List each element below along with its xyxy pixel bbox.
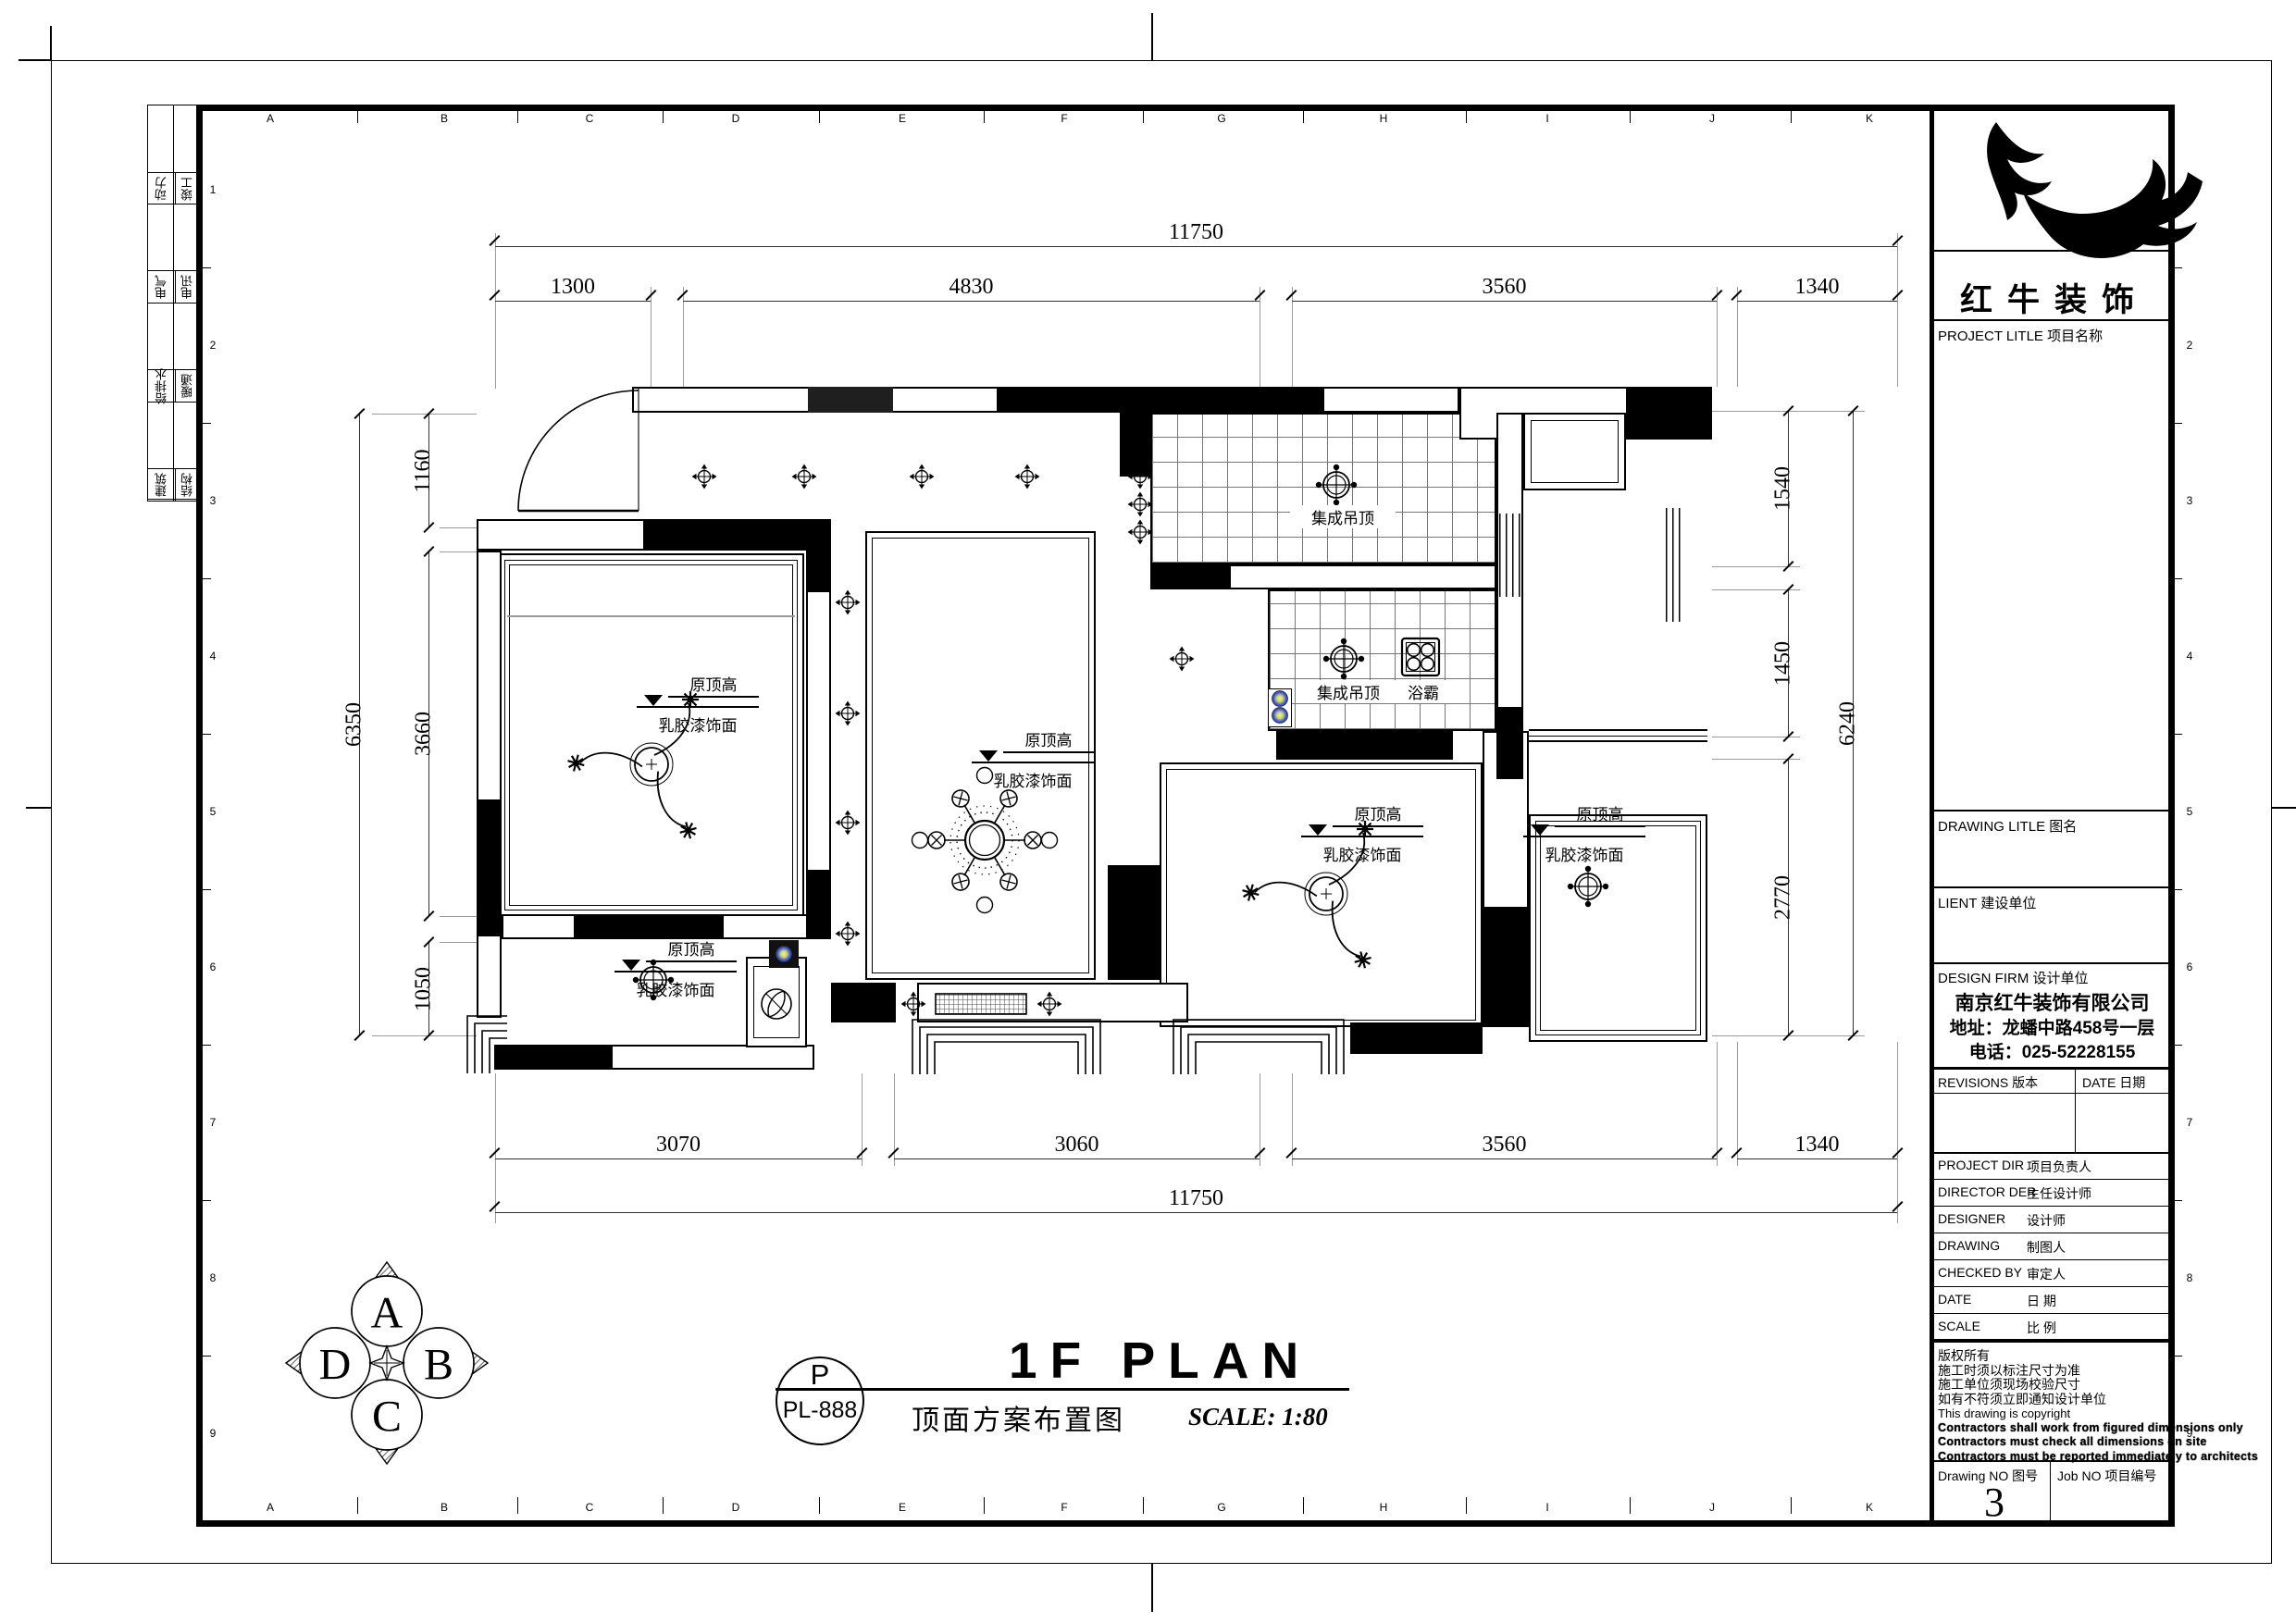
badge-number: PL-888 (776, 1397, 864, 1424)
sign-cell: 给排水 (147, 369, 176, 403)
grid-tick (2169, 1200, 2182, 1201)
grid-tick (198, 578, 211, 579)
grid-tick (198, 889, 211, 890)
row-label: 项目负责人 (2027, 1158, 2091, 1176)
scale-text: SCALE: 1:80 (1188, 1403, 1328, 1431)
badge-letter: P (776, 1358, 864, 1392)
sign-cell: 暖通 (173, 369, 201, 403)
copyright-line: Contractors must check all dimensions on… (1938, 1435, 2258, 1450)
grid-tick (2169, 889, 2182, 890)
bath-heater-label: 浴霸 (1384, 680, 1462, 703)
grid-reference-label: H (1374, 1501, 1393, 1514)
grid-reference-label: 4 (2180, 650, 2199, 663)
plan-subtitle: 顶面方案布置图 (912, 1397, 1125, 1438)
sign-label: 结构 (179, 473, 196, 497)
grid-reference-label: 9 (204, 1427, 222, 1440)
company-name: 南京红牛装饰有限公司 (1930, 988, 2175, 1016)
dimension: 1540 (1788, 411, 1789, 566)
copyright-block: 版权所有 施工时须以标注尺寸为准 施工单位须现场校验尺寸 如有不符须立即通知设计… (1938, 1349, 2258, 1464)
dimension: 3560 (1292, 1158, 1717, 1159)
dimension-right-overall: 6240 (1853, 411, 1854, 1035)
grid-tick (517, 106, 518, 123)
sign-label: 给排水 (153, 368, 170, 404)
grid-tick (1303, 106, 1304, 123)
grid-tick (198, 1045, 211, 1046)
grid-tick (517, 1497, 518, 1514)
titleblock-line (1930, 886, 2175, 888)
section-label: PROJECT LITLE 项目名称 (1938, 326, 2103, 345)
sign-cell: 电讯 (173, 270, 201, 304)
grid-tick (1791, 1497, 1792, 1514)
section-label: DRAWING LITLE 图名 (1938, 816, 2077, 836)
grid-reference-label: K (1860, 112, 1879, 125)
downlight-box (1268, 688, 1292, 727)
titleblock-line (2050, 1460, 2051, 1527)
grid-reference-label: 8 (204, 1271, 222, 1284)
section-label: REVISIONS 版本 (1938, 1073, 2038, 1092)
grid-reference-label: I (1538, 1501, 1557, 1514)
company-phone: 电话：025-52228155 (1930, 1038, 2175, 1063)
drawing-sheet: { "brand": {"name": "红牛装饰"}, "sign_strip… (0, 0, 2296, 1623)
titleblock-line (1930, 1313, 2175, 1314)
grid-reference-label: 3 (2180, 494, 2199, 507)
grid-tick (198, 267, 211, 268)
grid-reference-label: K (1860, 1501, 1879, 1514)
row-label: DIRECTOR DER (1938, 1184, 2036, 1199)
grid-tick (1791, 106, 1792, 123)
dimension: 3070 (495, 1158, 862, 1159)
grid-tick (1630, 1497, 1631, 1514)
sign-label: 电气 (153, 275, 170, 299)
sign-cell: 电气 (147, 270, 176, 304)
grid-reference-label: E (893, 1501, 912, 1514)
dimension-bottom-overall: 11750 (495, 1212, 1897, 1213)
brand-name: 红牛装饰 (1934, 274, 2175, 321)
grid-reference-label: 3 (204, 494, 222, 507)
copyright-line: 施工时须以标注尺寸为准 (1938, 1364, 2258, 1379)
drawing-no-value: 3 (1943, 1479, 2045, 1526)
titleblock-line (1930, 1259, 2175, 1260)
row-label: PROJECT DIR (1938, 1158, 2024, 1172)
grid-reference-label: J (1703, 1501, 1721, 1514)
grid-tick (357, 106, 358, 123)
grid-reference-label: G (1212, 112, 1231, 125)
grid-reference-label: 6 (204, 960, 222, 973)
grid-reference-label: B (435, 112, 453, 125)
grid-reference-label: J (1703, 112, 1721, 125)
dimension-top-overall: 11750 (495, 246, 1897, 247)
sign-cell: 建筑 (147, 468, 176, 502)
dimension: 1340 (1737, 1158, 1897, 1159)
titleblock-line (1930, 1206, 2175, 1207)
grid-tick (1466, 106, 1467, 123)
titleblock-line (1930, 1152, 2175, 1154)
row-label: CHECKED BY (1938, 1265, 2022, 1280)
titleblock-line (1930, 1067, 2175, 1070)
grid-reference-label: I (1538, 112, 1557, 125)
grid-reference-label: G (1212, 1501, 1231, 1514)
exhaust-closet (746, 957, 807, 1047)
elevation-marker: 原顶高乳胶漆饰面 (972, 727, 1094, 791)
grid-reference-label: 7 (204, 1116, 222, 1129)
dimension: 1340 (1737, 301, 1897, 302)
section-label: DESIGN FIRM 设计单位 (1938, 968, 2089, 987)
fold-mark-bottom (1151, 1564, 1153, 1612)
row-label: DRAWING (1938, 1238, 2000, 1253)
job-no-label: Job NO 项目编号 (2057, 1467, 2156, 1485)
grid-tick (1143, 1497, 1144, 1514)
elevation-marker: 原顶高乳胶漆饰面 (1523, 801, 1645, 865)
titleblock-line (1930, 1339, 2175, 1343)
grid-tick (198, 734, 211, 735)
grid-tick (819, 1497, 820, 1514)
grid-reference-label: E (893, 112, 912, 125)
titleblock-line (1930, 319, 2175, 321)
grid-reference-label: 1 (2180, 183, 2199, 196)
grid-reference-label: B (435, 1501, 453, 1514)
grid-tick (663, 1497, 664, 1514)
elevation-marker: 原顶高乳胶漆饰面 (1301, 801, 1423, 865)
grid-tick (984, 106, 985, 123)
titleblock-line (1930, 810, 2175, 811)
dimension: 1160 (428, 414, 429, 527)
grid-tick (2169, 734, 2182, 735)
grid-tick (1630, 106, 1631, 123)
grid-reference-label: 7 (2180, 1116, 2199, 1129)
grid-tick (2169, 267, 2182, 268)
row-label: 比 例 (2027, 1319, 2056, 1337)
company-address: 地址：龙蟠中路458号一层 (1930, 1014, 2175, 1039)
sign-label: 电讯 (179, 275, 196, 299)
sign-label: 动力 (153, 177, 170, 201)
copyright-line: 如有不符须立即通知设计单位 (1938, 1393, 2258, 1407)
grid-reference-label: C (580, 112, 599, 125)
corner-mark (50, 26, 52, 60)
sign-label: 建筑 (153, 473, 170, 497)
grid-reference-label: H (1374, 112, 1393, 125)
grid-reference-label: F (1055, 112, 1074, 125)
grid-tick (984, 1497, 985, 1514)
ceiling-label: 集成吊顶 (1290, 505, 1396, 528)
dimension: 2770 (1788, 759, 1789, 1035)
grid-tick (1466, 1497, 1467, 1514)
titleblock-line (1930, 1179, 2175, 1180)
row-label: DATE (1938, 1292, 1971, 1307)
copyright-line: 施工单位须现场校验尺寸 (1938, 1378, 2258, 1393)
copyright-line: This drawing is copyright (1938, 1406, 2258, 1421)
grid-reference-label: 1 (204, 183, 222, 196)
grid-tick (357, 1497, 358, 1514)
grid-reference-label: 5 (2180, 805, 2199, 818)
row-label: 主任设计师 (2027, 1184, 2091, 1203)
dimension: 3560 (1292, 301, 1717, 302)
plan-title: 1F PLAN (1009, 1331, 1311, 1390)
drawing-frame (196, 105, 2175, 1527)
grid-reference-label: A (261, 112, 279, 125)
sign-label: 竣工 (179, 177, 196, 201)
dimension: 3060 (894, 1158, 1260, 1159)
row-label: DESIGNER (1938, 1211, 2005, 1226)
dimension: 3660 (428, 551, 429, 916)
section-label: LIENT 建设单位 (1938, 893, 2036, 912)
titleblock-line (2075, 1067, 2076, 1152)
sign-cell: 结构 (173, 468, 201, 502)
corner-mark (19, 59, 51, 61)
copyright-line: 版权所有 (1938, 1349, 2258, 1364)
row-label: 日 期 (2027, 1292, 2056, 1310)
row-label: 审定人 (2027, 1265, 2066, 1283)
mid-mark-right (2272, 807, 2296, 809)
section-label: DATE 日期 (2082, 1073, 2145, 1092)
grid-reference-label: C (580, 1501, 599, 1514)
copyright-line: Contractors shall work from figured dime… (1938, 1421, 2258, 1436)
grid-reference-label: 5 (204, 805, 222, 818)
downlight-box (769, 940, 799, 968)
row-label: SCALE (1938, 1319, 1980, 1333)
fold-mark-top (1151, 13, 1153, 60)
elevation-marker: 原顶高乳胶漆饰面 (614, 936, 737, 1000)
titleblock-line (1930, 250, 2175, 252)
grid-reference-label: 6 (2180, 960, 2199, 973)
grid-reference-label: 8 (2180, 1271, 2199, 1284)
row-label: 设计师 (2027, 1211, 2066, 1230)
sign-cell: 动力 (147, 172, 176, 204)
grid-tick (198, 1200, 211, 1201)
grid-tick (2169, 423, 2182, 424)
grid-reference-label: A (261, 1501, 279, 1514)
titleblock-line (1930, 1233, 2175, 1233)
grid-tick (663, 106, 664, 123)
dimension: 1050 (428, 942, 429, 1035)
grid-tick (819, 106, 820, 123)
dimension-left-overall: 6350 (359, 414, 360, 1035)
grid-tick (1303, 1497, 1304, 1514)
grid-tick (1143, 106, 1144, 123)
mid-mark-left (26, 807, 51, 809)
grid-reference-label: 2 (2180, 339, 2199, 352)
grid-reference-label: F (1055, 1501, 1074, 1514)
grid-reference-label: 2 (204, 339, 222, 352)
grid-tick (2169, 578, 2182, 579)
dimension: 1450 (1788, 589, 1789, 737)
grid-tick (198, 1356, 211, 1357)
grid-reference-label: D (726, 112, 745, 125)
sign-cell: 竣工 (173, 172, 201, 204)
titleblock-line (1930, 1093, 2175, 1094)
titleblock-line (1930, 962, 2175, 964)
row-label: 制图人 (2027, 1238, 2066, 1257)
elevation-marker: 原顶高乳胶漆饰面 (637, 672, 759, 736)
titleblock-line (1930, 1286, 2175, 1287)
dimension: 1300 (495, 301, 651, 302)
grid-reference-label: 4 (204, 650, 222, 663)
titleblock-line (1930, 1460, 2175, 1462)
grid-reference-label: D (726, 1501, 745, 1514)
sign-label: 暖通 (179, 374, 196, 398)
grid-tick (198, 423, 211, 424)
dimension: 4830 (683, 301, 1260, 302)
